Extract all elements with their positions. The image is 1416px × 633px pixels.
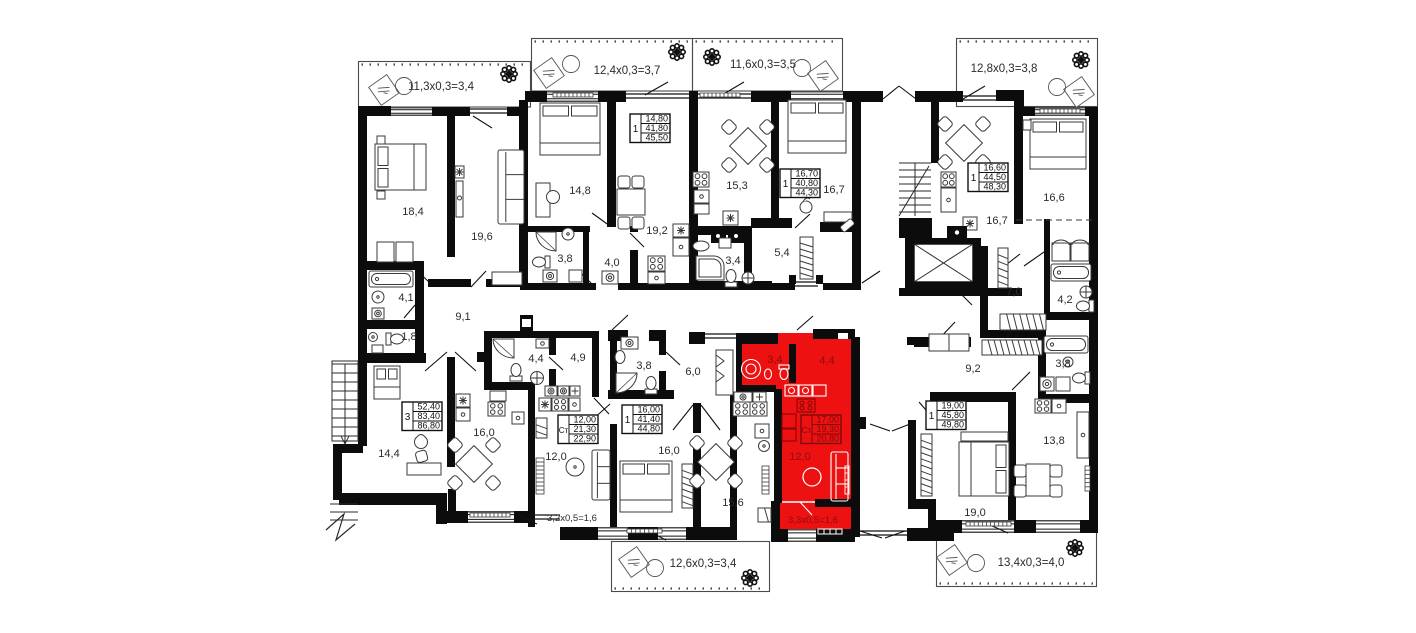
svg-text:1: 1 [929,411,935,422]
svg-text:Ст: Ст [559,426,569,435]
svg-text:3: 3 [405,412,411,423]
svg-text:16,0: 16,0 [473,427,494,439]
svg-text:1: 1 [625,415,631,426]
svg-text:15,6: 15,6 [722,497,743,509]
svg-text:1: 1 [783,179,789,190]
svg-text:52,40: 52,40 [417,402,440,412]
svg-text:45,80: 45,80 [941,410,964,420]
svg-text:13,4x0,3=4,0: 13,4x0,3=4,0 [998,557,1065,569]
svg-text:4,9: 4,9 [570,352,585,364]
svg-text:12,8x0,3=3,8: 12,8x0,3=3,8 [971,63,1038,75]
svg-text:4,1: 4,1 [398,292,413,304]
svg-text:5,4: 5,4 [774,247,789,259]
svg-text:4,4: 4,4 [528,353,543,365]
svg-text:14,4: 14,4 [378,448,399,460]
svg-text:16,6: 16,6 [1043,192,1064,204]
svg-text:19,6: 19,6 [471,231,492,243]
svg-text:4,0: 4,0 [604,257,619,269]
svg-text:1,8: 1,8 [401,331,416,343]
svg-text:1: 1 [971,173,977,184]
svg-text:19,2: 19,2 [646,225,667,237]
svg-text:44,80: 44,80 [637,424,660,434]
svg-text:9,1: 9,1 [455,311,470,323]
svg-text:19,30: 19,30 [816,424,839,434]
svg-text:19,00: 19,00 [941,401,964,411]
svg-text:7,0: 7,0 [1006,286,1021,298]
svg-text:48,30: 48,30 [983,182,1006,192]
svg-text:16,0: 16,0 [658,445,679,457]
svg-text:11,6x0,3=3,5: 11,6x0,3=3,5 [730,59,796,71]
svg-text:3,4: 3,4 [767,354,782,366]
svg-text:21,30: 21,30 [573,424,596,434]
svg-text:3,8: 3,8 [1055,358,1070,370]
svg-text:44,30: 44,30 [795,188,818,198]
svg-text:16,70: 16,70 [795,169,818,179]
svg-text:14,8: 14,8 [569,185,590,197]
svg-text:Ст: Ст [802,426,812,435]
svg-text:14,80: 14,80 [645,114,668,124]
svg-text:44,50: 44,50 [983,172,1006,182]
svg-text:19,0: 19,0 [964,507,985,519]
svg-text:9,2: 9,2 [965,363,980,375]
svg-text:6,0: 6,0 [685,366,700,378]
svg-text:11,3x0,3=3,4: 11,3x0,3=3,4 [408,81,475,93]
svg-text:45,50: 45,50 [645,133,668,143]
svg-text:1: 1 [633,124,639,135]
svg-text:13,8: 13,8 [1043,435,1064,447]
svg-text:16,7: 16,7 [986,215,1007,227]
svg-text:20,80: 20,80 [816,434,839,444]
svg-text:16,00: 16,00 [637,405,660,415]
svg-text:41,80: 41,80 [645,123,668,133]
svg-text:41,40: 41,40 [637,414,660,424]
svg-text:3,8: 3,8 [636,360,651,372]
svg-text:17,00: 17,00 [816,415,839,425]
svg-text:83,40: 83,40 [417,411,440,421]
svg-text:15,3: 15,3 [726,180,747,192]
svg-text:12,0: 12,0 [789,451,810,463]
svg-text:3,3x0,5=1,6: 3,3x0,5=1,6 [788,515,838,526]
svg-text:3,4: 3,4 [725,255,740,267]
svg-text:18,4: 18,4 [402,206,423,218]
svg-text:12,00: 12,00 [573,415,596,425]
svg-text:22,90: 22,90 [573,434,596,444]
svg-text:3,8: 3,8 [557,253,572,265]
svg-text:40,80: 40,80 [795,178,818,188]
svg-text:4,2: 4,2 [1057,294,1072,306]
svg-text:86,80: 86,80 [417,421,440,431]
svg-text:3,2x0,5=1,6: 3,2x0,5=1,6 [547,513,597,524]
svg-text:16,60: 16,60 [983,163,1006,173]
svg-text:16,7: 16,7 [823,184,844,196]
svg-text:12,6x0,3=3,4: 12,6x0,3=3,4 [670,558,737,570]
svg-text:49,80: 49,80 [941,420,964,430]
svg-text:12,4x0,3=3,7: 12,4x0,3=3,7 [594,65,661,77]
svg-text:12,0: 12,0 [545,451,566,463]
svg-text:4,4: 4,4 [819,355,834,367]
